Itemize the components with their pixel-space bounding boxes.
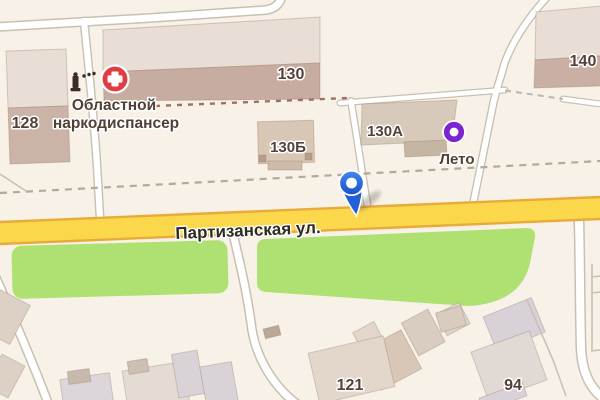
building-140 xyxy=(534,6,600,88)
building-label-128: 128 xyxy=(12,115,39,132)
poi-dispensary-label-line2[interactable]: наркодиспансер xyxy=(53,115,179,132)
building-label-130: 130 xyxy=(278,66,305,83)
building-label-94: 94 xyxy=(504,377,522,394)
pin-head-hole xyxy=(346,178,357,189)
building-label-140: 140 xyxy=(570,53,597,70)
building-small-4 xyxy=(200,362,238,400)
building-128 xyxy=(6,49,70,164)
building-130 xyxy=(103,17,320,101)
building-small-1b xyxy=(67,369,91,385)
green-area-left xyxy=(11,240,228,299)
building-small-2b xyxy=(127,359,149,375)
building-label-130b: 130Б xyxy=(270,139,306,156)
building-label-121: 121 xyxy=(337,377,364,394)
poi-leto-label[interactable]: Лето xyxy=(440,151,475,168)
poi-dispensary-label-line1[interactable]: Областной xyxy=(72,97,156,114)
leto-icon-hole xyxy=(450,128,459,137)
medical-cross-h xyxy=(108,75,123,82)
map-canvas[interactable]: Партизанская ул. xyxy=(0,0,600,400)
map-viewport: Партизанская ул. xyxy=(0,0,600,400)
building-label-130a: 130А xyxy=(367,123,403,140)
